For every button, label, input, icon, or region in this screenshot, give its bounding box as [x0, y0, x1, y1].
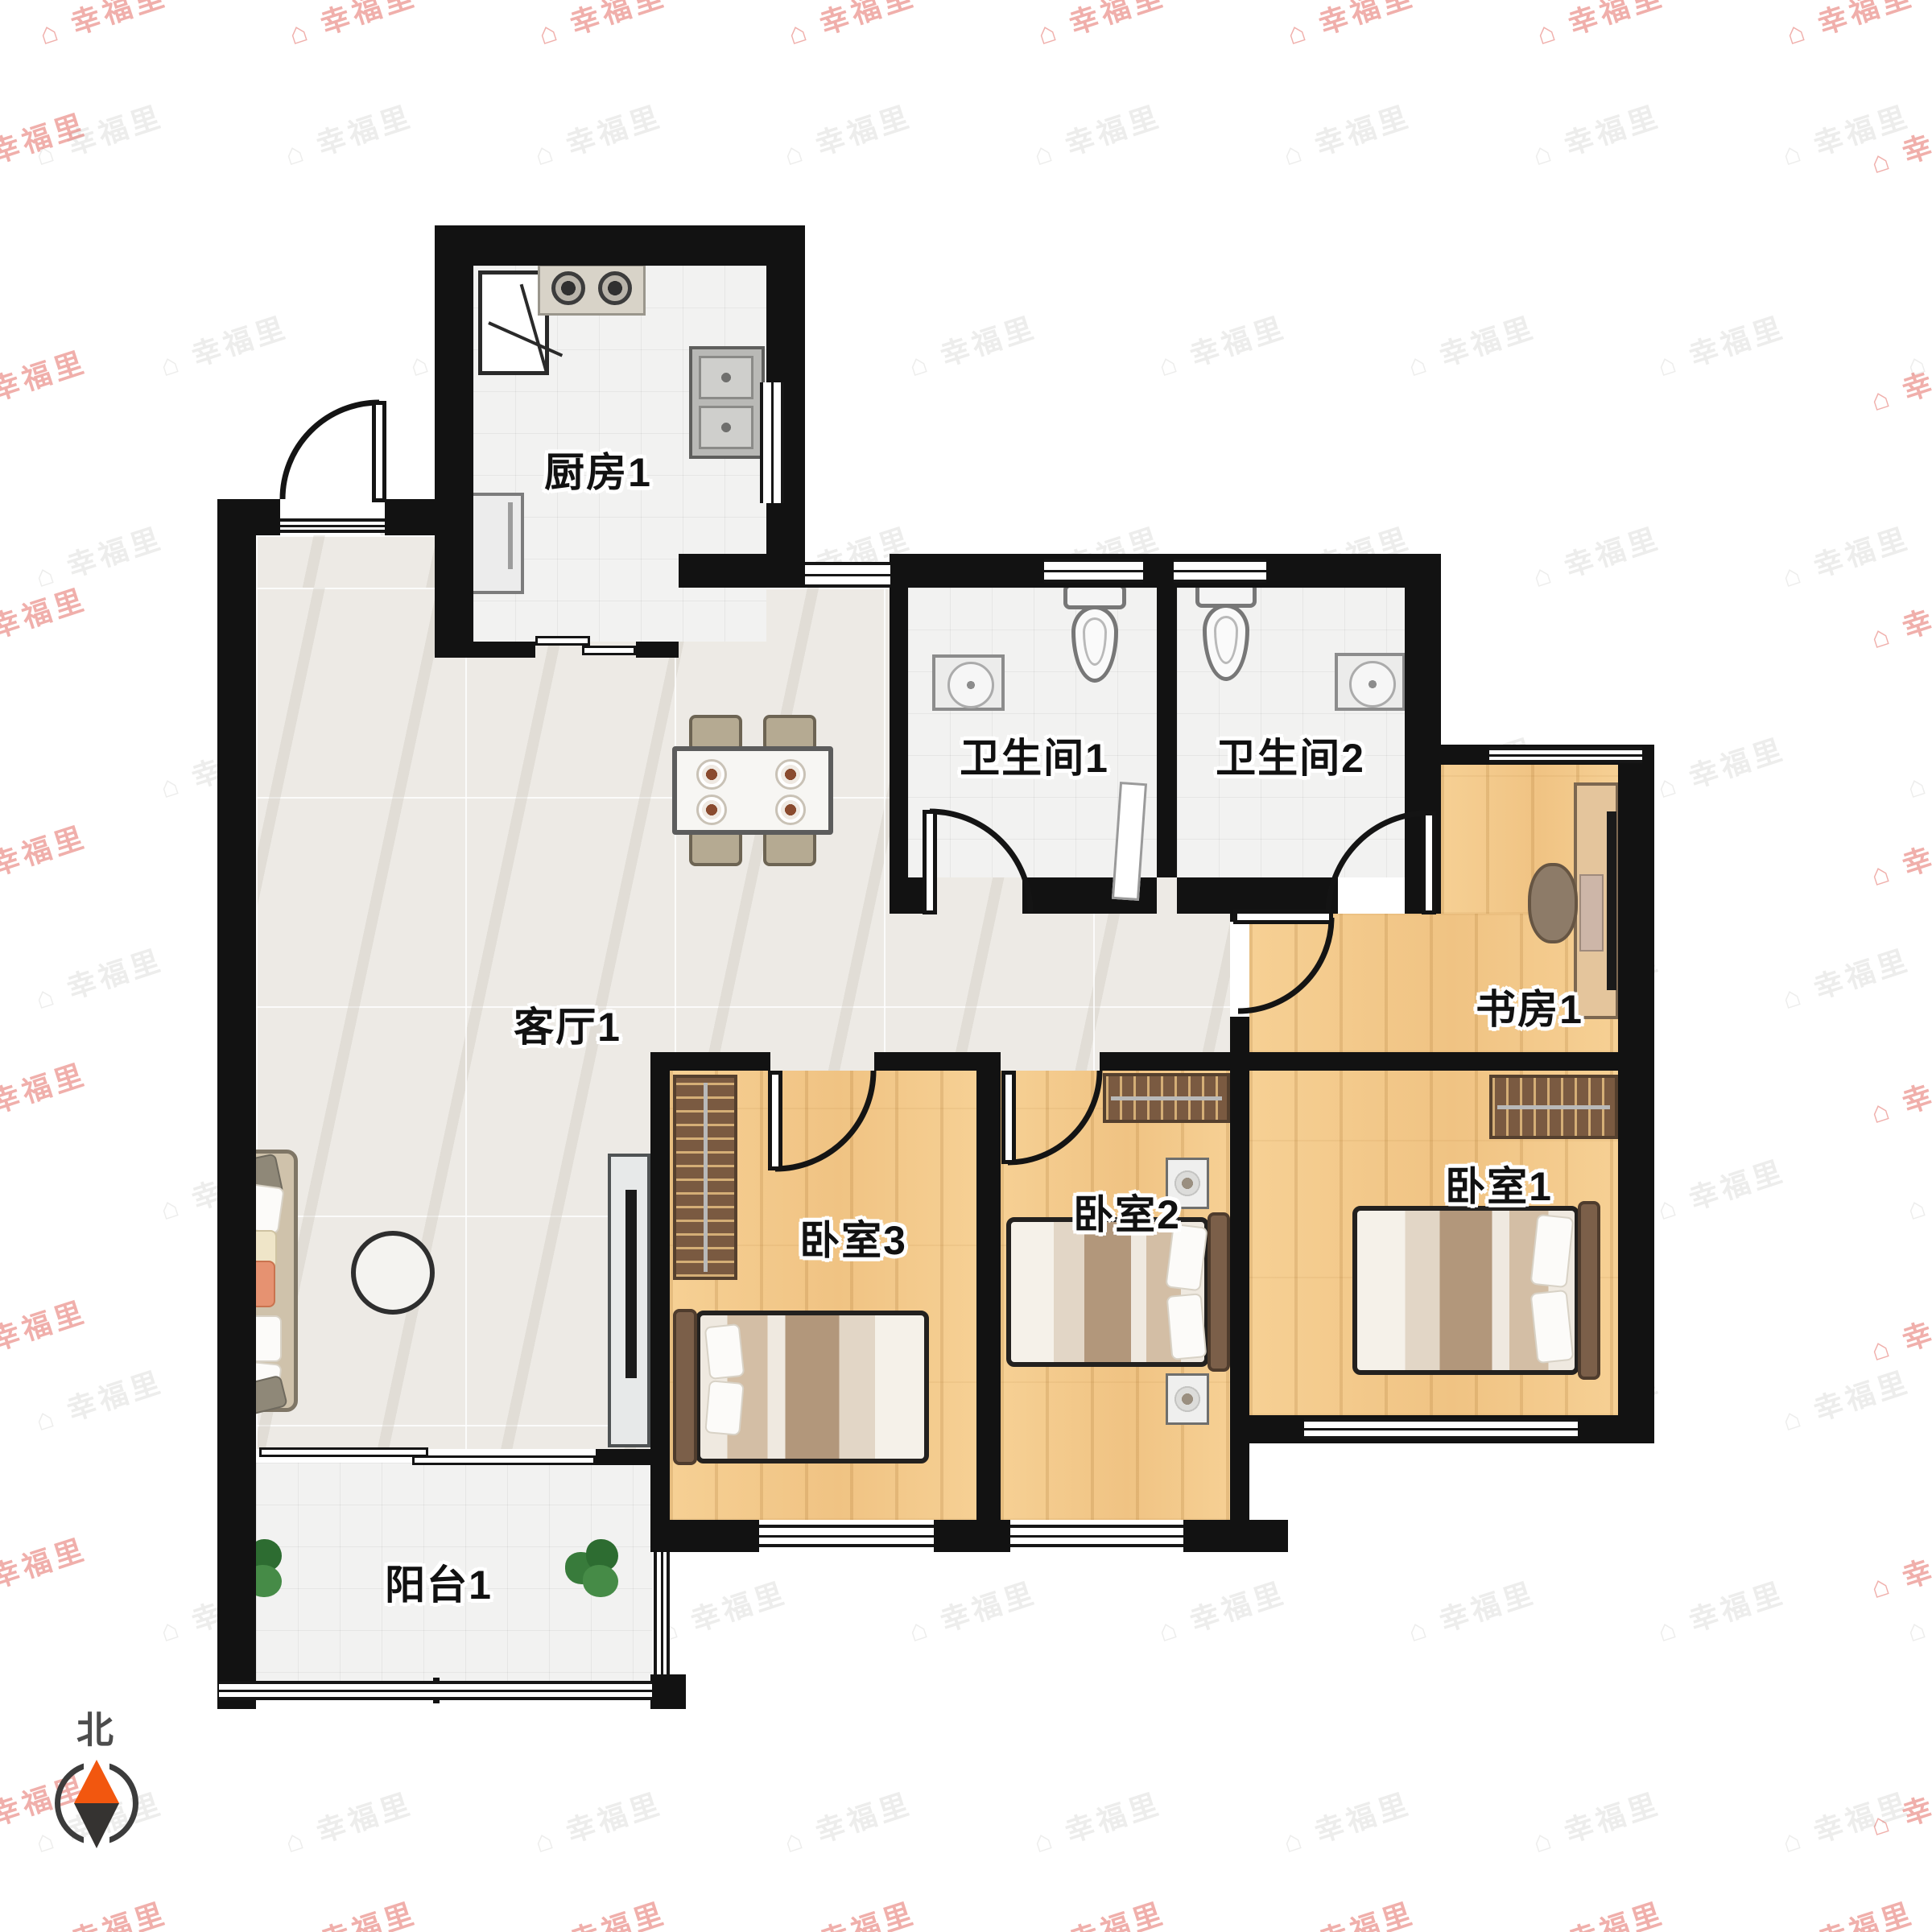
door-arcs-layer: [0, 0, 1932, 1932]
room-label-bathroom2: 卫生间2: [1216, 726, 1365, 784]
compass-north-label: 北: [76, 1701, 114, 1754]
compass-needle-north: [74, 1760, 119, 1803]
study-door-leaf: [1233, 910, 1333, 924]
room-label-study: 书房1: [1476, 977, 1583, 1035]
room-label-bedroom1: 卧室1: [1445, 1154, 1553, 1212]
bedroom2-door-arc: [1008, 1071, 1100, 1162]
room-label-bedroom2: 卧室2: [1073, 1183, 1181, 1241]
room-label-living: 客厅1: [514, 995, 621, 1053]
room-label-bedroom3: 卧室3: [799, 1208, 907, 1266]
floorplan-canvas: ⌂ 幸福里⌂ 幸福里⌂ 幸福里⌂ 幸福里⌂ 幸福里⌂ 幸福里⌂ 幸福里⌂ 幸福里…: [0, 0, 1932, 1932]
entry-door-leaf: [372, 401, 386, 502]
room-label-bathroom1: 卫生间1: [960, 726, 1109, 784]
entry-door-arc: [283, 402, 379, 499]
study-door-arc: [1238, 918, 1331, 1011]
bathroom1-door-arc: [930, 811, 1030, 912]
bedroom3-door-arc: [775, 1071, 873, 1169]
compass-needle-south: [74, 1803, 119, 1848]
bathroom2-door-arc: [1328, 813, 1429, 914]
bedroom3-door-leaf: [768, 1071, 782, 1170]
room-label-balcony: 阳台1: [385, 1553, 493, 1611]
bedroom2-door-leaf: [1001, 1071, 1016, 1164]
room-label-kitchen: 厨房1: [544, 440, 652, 498]
bathroom1-door-leaf: [923, 810, 937, 914]
bathroom2-door-leaf: [1422, 811, 1436, 914]
